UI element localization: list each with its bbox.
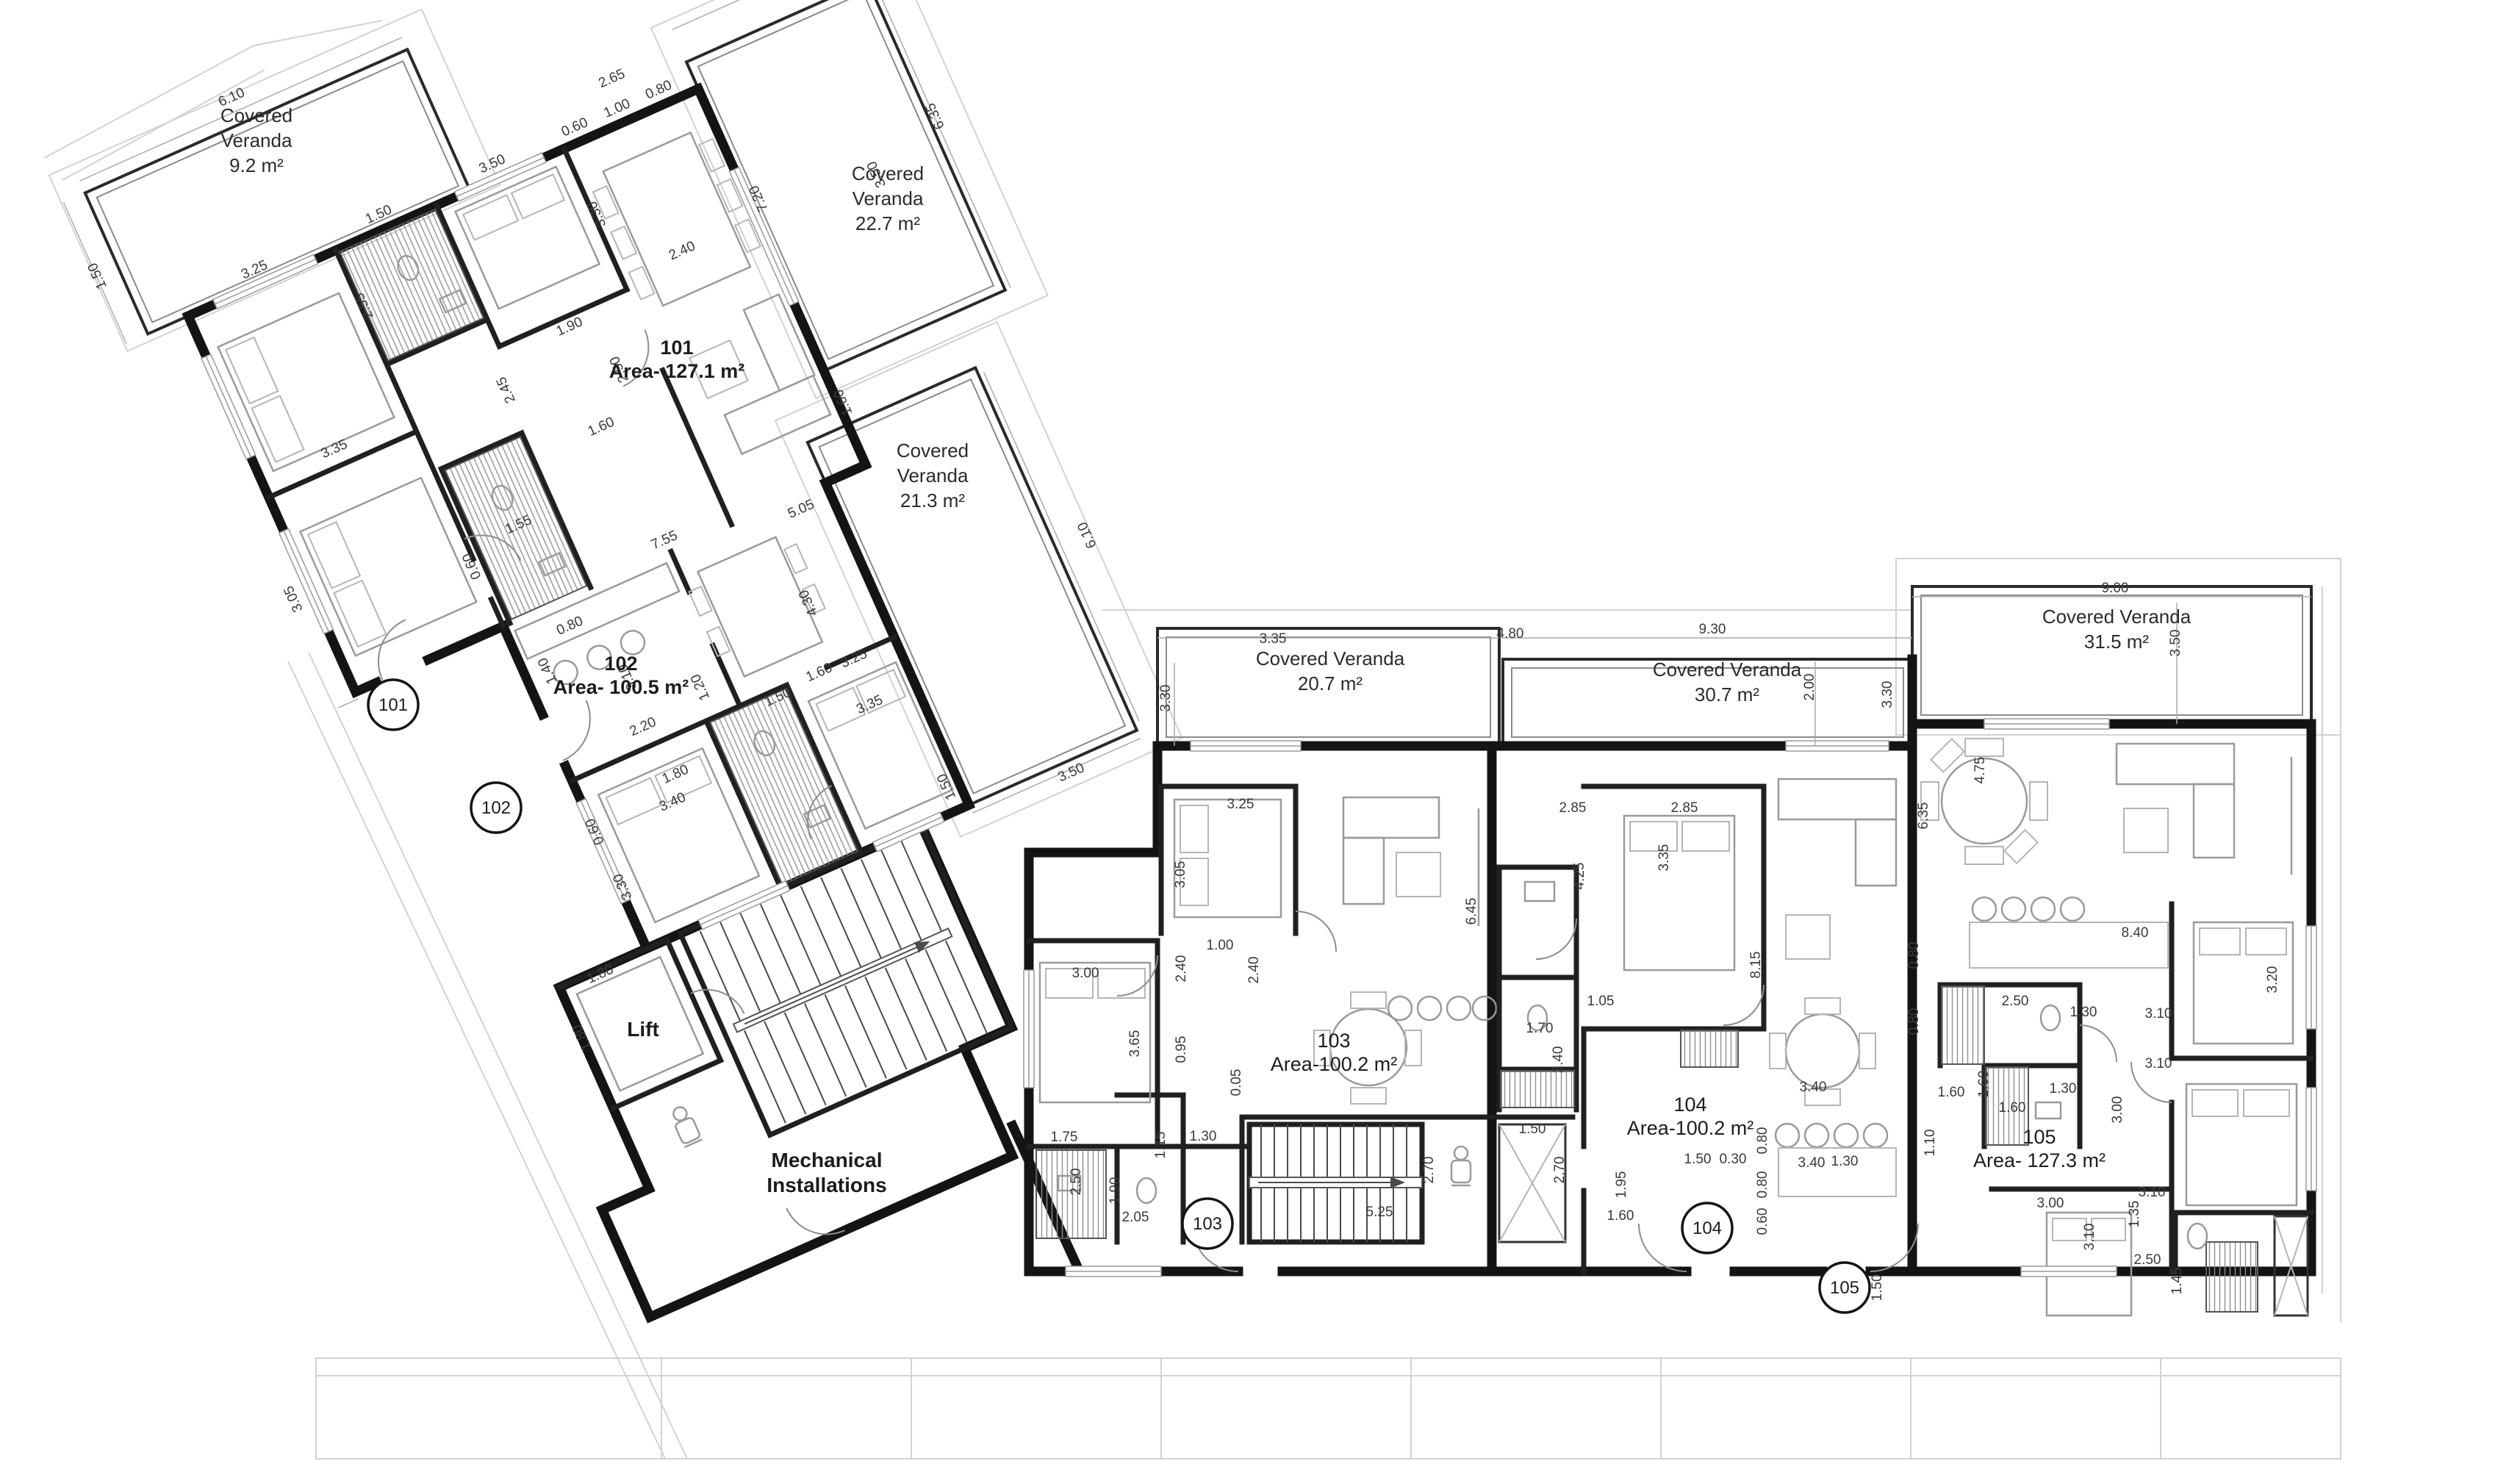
dimension-label: 0.95 — [1174, 1036, 1189, 1063]
dimension-label: 1.60 — [830, 387, 855, 417]
dimension-label: 8.15 — [1748, 952, 1764, 979]
dimension-label: 3.50 — [2168, 630, 2183, 657]
right-wing-dimensions: 3.354.809.303.302.003.309.003.503.253.05… — [1051, 581, 2280, 1301]
dimension-label: 3.05 — [1173, 861, 1188, 889]
dimension-label: 9.00 — [2102, 581, 2129, 596]
dimension-label: 2.85 — [1671, 800, 1698, 816]
wheelchair-icon — [669, 1104, 702, 1147]
dimension-label: 3.10 — [2145, 1056, 2172, 1071]
bed — [2186, 1084, 2297, 1205]
lift-label: Lift — [627, 1018, 659, 1041]
dimension-label: 2.70 — [1421, 1157, 1437, 1184]
veranda-label-20-7: Covered Veranda20.7 m² — [1256, 647, 1405, 694]
dimension-label: 3.25 — [1227, 797, 1254, 812]
dimension-label: 1.60 — [1607, 1208, 1634, 1224]
dimension-label: 1.30 — [1831, 1154, 1859, 1169]
dimension-label: 9.30 — [1699, 622, 1726, 637]
dimension-label: 2.85 — [1559, 800, 1587, 816]
dimension-label: 2.05 — [1122, 1210, 1149, 1225]
sofa — [1778, 779, 1896, 959]
dimension-label: 3.35 — [854, 692, 885, 717]
unit-bubble-102: 102 — [471, 783, 521, 833]
unit-bubble-number: 105 — [1830, 1278, 1859, 1298]
dimension-label: 6.35 — [923, 101, 948, 132]
unit-bubble-number: 101 — [378, 695, 408, 715]
dimension-label: 4.75 — [1972, 757, 1988, 784]
dimension-label: 2.70 — [1552, 1157, 1568, 1184]
veranda-22-7 — [686, 0, 1005, 371]
dimension-label: 0.80 — [1906, 1008, 1922, 1035]
dimension-label: 2.50 — [2134, 1252, 2161, 1268]
dimension-label: 1.60 — [586, 414, 617, 439]
dimension-label: 3.20 — [2265, 966, 2280, 994]
apartment-104-label: 104Area-100.2 m² — [1627, 1094, 1754, 1139]
dimension-label: 1.05 — [1587, 994, 1615, 1009]
dimension-label: 6.35 — [1916, 803, 1931, 830]
wheelchair-icon — [1451, 1146, 1471, 1185]
dimension-label: 1.60 — [1938, 1085, 1965, 1100]
dimension-label: 1.75 — [1051, 1130, 1078, 1145]
dimension-label: 3.10 — [2082, 1224, 2097, 1251]
shaft — [2275, 1216, 2308, 1315]
dimension-label: 2.45 — [494, 374, 519, 405]
dimension-label: 1.50 — [1519, 1121, 1546, 1137]
window — [1024, 719, 2316, 1277]
dimension-label: 0.60 — [1755, 1208, 1770, 1235]
dimension-label: 0.05 — [1229, 1069, 1244, 1096]
unit-bubble-103: 103 — [1182, 1199, 1232, 1249]
sofa — [1343, 797, 1440, 904]
dimension-label: 1.10 — [1923, 1130, 1938, 1157]
dimension-label: 1.95 — [1614, 1171, 1629, 1199]
dimension-label: 1.50 — [1870, 1274, 1885, 1302]
dimension-label: 3.30 — [584, 199, 609, 230]
dimension-label: 3.35 — [319, 437, 350, 462]
dimension-label: 2.40 — [667, 238, 697, 263]
dimension-label: 3.30 — [1880, 681, 1895, 708]
dimension-label: 1.90 — [1108, 1177, 1123, 1205]
dimension-label: 1.70 — [1526, 1021, 1554, 1036]
dimension-label: 4.25 — [1572, 863, 1587, 890]
dimension-label: 0.80 — [1755, 1171, 1770, 1199]
dimension-label: 3.35 — [1656, 844, 1672, 872]
dimension-label: 7.55 — [649, 528, 680, 553]
core-outer-wall — [512, 826, 1059, 1317]
dimension-label: 3.30 — [610, 871, 635, 902]
dimension-label: 1.50 — [85, 260, 110, 291]
dimension-label: 3.00 — [2110, 1096, 2125, 1124]
kitchen — [1388, 997, 1496, 1020]
dimension-label: 1.00 — [1207, 938, 1234, 953]
dimension-label: 1.60 — [1999, 1100, 2026, 1116]
veranda-label-21-3: CoveredVeranda21.3 m² — [897, 439, 969, 511]
dimension-label: 1.30 — [2070, 1005, 2097, 1020]
dimension-label: 2.40 — [1174, 955, 1189, 983]
dimension-label: 8.40 — [2122, 925, 2149, 941]
dimension-label: 2.40 — [1246, 957, 1262, 984]
dimension-label: 1.45 — [2169, 1268, 2185, 1295]
unit-bubble-104: 104 — [1682, 1203, 1732, 1253]
dimension-label: 1.20 — [688, 672, 713, 703]
unit-bubble-number: 103 — [1193, 1214, 1222, 1234]
dimension-label: 1.50 — [1684, 1152, 1712, 1167]
unit-bubble-number: 102 — [481, 798, 511, 818]
floor-plan-page: 6.101.503.251.502.553.500.601.000.803.30… — [0, 0, 2520, 1461]
bed — [1624, 816, 1734, 970]
dimension-label: 3.40 — [1800, 1080, 1827, 1095]
dimension-label: 1.15 — [1153, 1132, 1169, 1159]
dimension-label: 3.40 — [657, 790, 688, 815]
mechanical-installations-label: MechanicalInstallations — [767, 1149, 886, 1196]
dimension-label: 2.20 — [628, 714, 658, 739]
unit-bubble-number: 104 — [1692, 1218, 1722, 1238]
dimension-label: 3.65 — [1127, 1030, 1143, 1058]
bed — [1174, 800, 1281, 917]
unit-bubble-105: 105 — [1820, 1263, 1870, 1313]
dimension-label: 3.10 — [2139, 1185, 2166, 1200]
dimension-label: 1.35 — [2127, 1201, 2142, 1228]
dimension-label: 0.80 — [1906, 942, 1922, 969]
dimension-label: 2.50 — [2002, 994, 2029, 1009]
dimension-label: 2.65 — [596, 66, 627, 91]
dimension-label: 1.60 — [803, 660, 834, 685]
dimension-label: 3.00 — [2037, 1196, 2064, 1211]
dimension-label: 6.10 — [1074, 520, 1099, 550]
apartment-103-label: 103Area-100.2 m² — [1271, 1030, 1398, 1075]
veranda-label-30-7: Covered Veranda30.7 m² — [1653, 658, 1802, 706]
floor-plan-canvas: 6.101.503.251.502.553.500.601.000.803.30… — [0, 0, 2520, 1461]
dimension-label: 3.10 — [2145, 1006, 2172, 1022]
dimension-label: 3.30 — [1158, 685, 1174, 712]
dimension-label: 6.45 — [1464, 898, 1479, 925]
dimension-label: 0.60 — [583, 816, 608, 847]
dimension-label: 0.80 — [1755, 1127, 1770, 1155]
stairs-left — [681, 826, 1012, 1135]
dimension-label: 3.05 — [281, 584, 306, 614]
apartment-105 — [1921, 739, 2311, 1315]
dimension-label: 5.05 — [786, 497, 816, 522]
dimension-label: 3.40 — [1798, 1155, 1826, 1171]
dimension-label: 3.25 — [839, 646, 869, 671]
stairs-right — [1249, 1124, 1422, 1242]
unit-bubble-101: 101 — [368, 680, 418, 730]
dimension-label: 2.40 — [1551, 1047, 1566, 1074]
veranda-label-22-7: CoveredVeranda22.7 m² — [852, 162, 924, 234]
dimension-label: 3.35 — [1260, 631, 1287, 647]
sofa — [2117, 744, 2234, 858]
dimension-label: 4.80 — [1497, 626, 1524, 642]
dimension-label: 2.50 — [1069, 1169, 1084, 1196]
veranda-label-9-2: CoveredVeranda9.2 m² — [220, 104, 292, 176]
dimension-label: 1.30 — [1190, 1129, 1217, 1144]
dimension-label: 1.60 — [1976, 1071, 1992, 1098]
dimension-label: 3.00 — [1072, 966, 1099, 981]
dimension-label: 0.30 — [1720, 1152, 1747, 1167]
dimension-label: 2.00 — [1802, 674, 1817, 701]
apartment-104 — [1499, 779, 1896, 1271]
dimension-label: 5.25 — [1366, 1205, 1393, 1220]
dining-table — [587, 126, 767, 313]
dimension-label: 1.30 — [2050, 1081, 2077, 1096]
